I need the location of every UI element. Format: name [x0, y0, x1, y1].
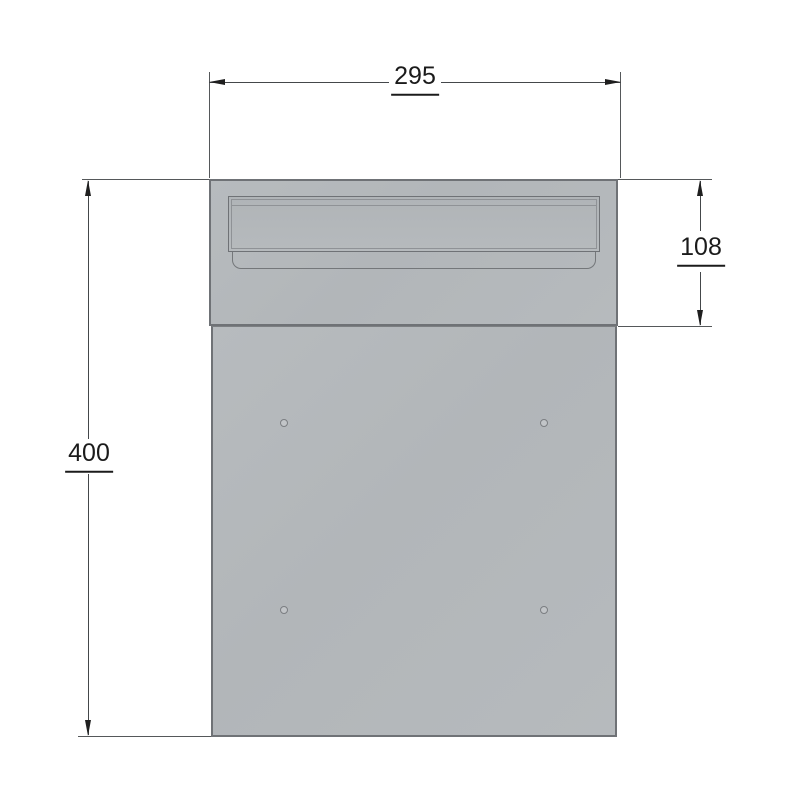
technical-drawing-canvas: 295 400 108 — [0, 0, 800, 800]
dimension-line-width-right-segment — [441, 82, 621, 83]
arrowhead-slot-bottom — [697, 310, 703, 326]
screw-hole-bottom-left — [280, 606, 288, 614]
letter-slot-inner-frame — [231, 199, 597, 249]
arrowhead-height-bottom — [85, 720, 91, 736]
screw-hole-top-left — [280, 419, 288, 427]
arrowhead-width-left — [209, 79, 225, 85]
letter-flap-outline — [232, 251, 596, 269]
arrowhead-width-right — [605, 79, 621, 85]
dimension-label-height: 400 — [65, 440, 113, 473]
extension-line-width-left — [209, 72, 210, 178]
arrowhead-slot-top — [697, 180, 703, 196]
dimension-label-width: 295 — [391, 63, 439, 96]
extension-line-height-top — [82, 179, 209, 180]
dimension-line-height-top-segment — [88, 181, 89, 439]
extension-line-width-right — [620, 72, 621, 178]
screw-hole-bottom-right — [540, 606, 548, 614]
letter-slot-frame — [228, 196, 600, 252]
extension-line-slot-bottom — [618, 326, 712, 327]
screw-hole-top-right — [540, 419, 548, 427]
letterbox-body-panel — [211, 326, 617, 737]
dimension-line-height-bottom-segment — [88, 474, 89, 735]
dimension-line-width-left-segment — [209, 82, 389, 83]
letter-slot-top-trim-line — [232, 205, 596, 206]
arrowhead-height-top — [85, 180, 91, 196]
extension-line-height-bottom — [78, 736, 211, 737]
dimension-label-slot-height: 108 — [677, 234, 725, 267]
